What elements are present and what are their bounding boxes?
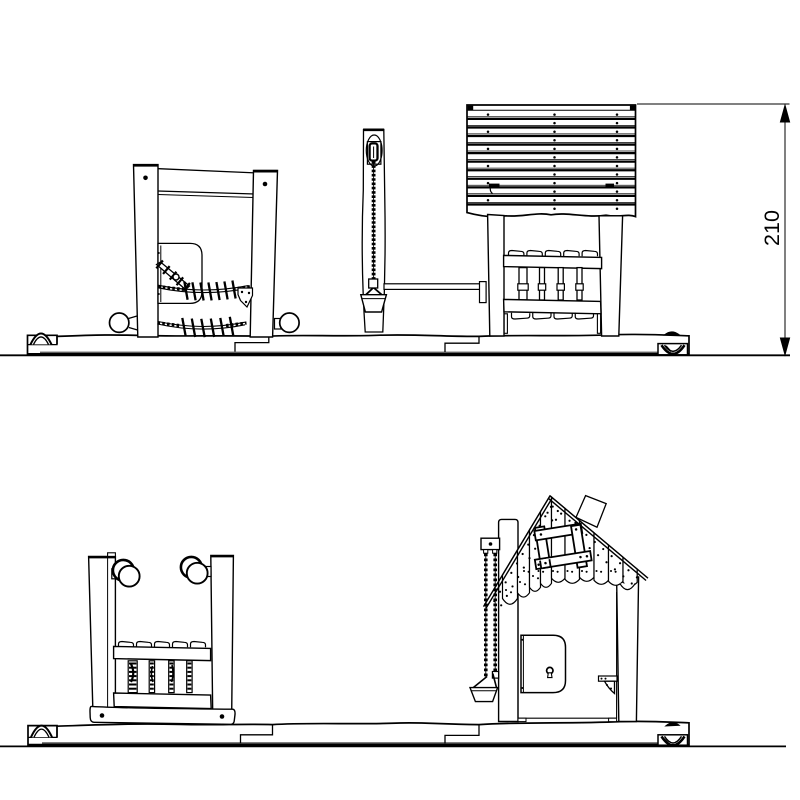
svg-text:210: 210 <box>760 210 784 246</box>
